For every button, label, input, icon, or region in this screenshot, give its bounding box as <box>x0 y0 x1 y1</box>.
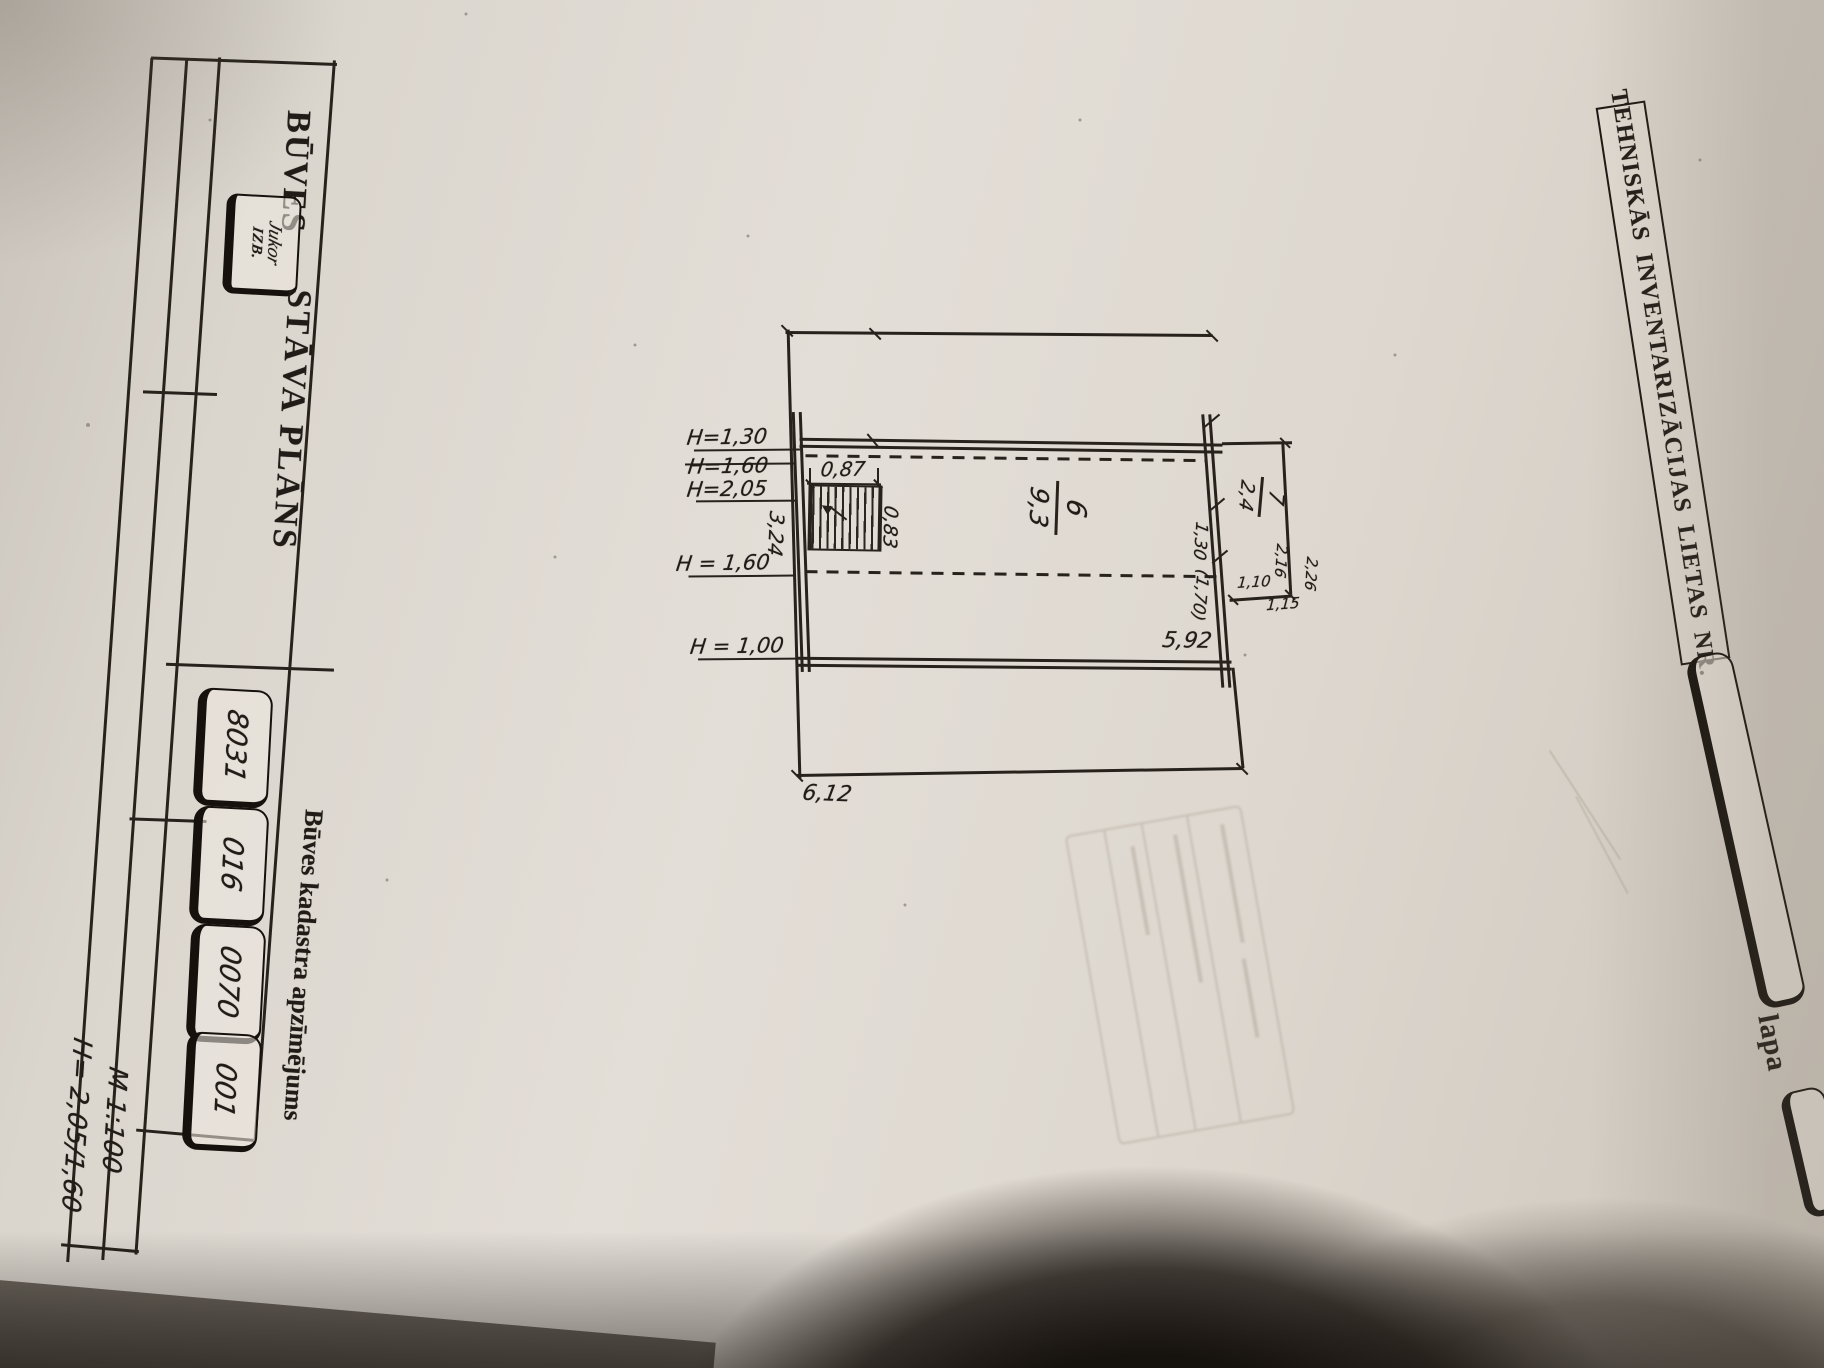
lapa-label: lapa <box>1750 1012 1793 1074</box>
room6-area: 9,3 <box>1024 484 1054 530</box>
cadastre-value-1: 8031 <box>218 707 254 786</box>
dim-annex-side-a: 2,16 <box>1271 542 1291 579</box>
stamp-line2: IZB. <box>247 225 264 261</box>
dim-hatch-depth: 0,83 <box>878 504 901 550</box>
height-mark-1: H=1,30 <box>685 424 768 449</box>
room6-label: 6 9,3 <box>1024 480 1092 536</box>
dim-annex-bottom-a: 1,10 <box>1237 572 1272 592</box>
room7-label: 7 2,4 <box>1234 475 1290 519</box>
paper-speck <box>904 904 907 907</box>
scale-note: M 1:100 <box>95 1064 132 1176</box>
paper-speck <box>554 556 557 559</box>
header-title-band: TEHNISKĀS INVENTARIZĀCIJAS LIETAS NR. <box>1596 100 1731 665</box>
dim-overall-width: 6,12 <box>800 781 853 808</box>
title-block-divider-1 <box>143 390 217 395</box>
title-block-top-edge <box>151 56 337 65</box>
room6-wall-bottom <box>796 657 1231 663</box>
paper-speck <box>1699 159 1702 162</box>
pencil-mark <box>1549 750 1621 860</box>
paper-speck <box>1394 354 1397 357</box>
height-mark-4: H = 1,60 <box>675 550 771 576</box>
paper-speck <box>1079 119 1082 122</box>
cadastre-value-3: 0070 <box>211 943 247 1022</box>
plan-outline-top <box>785 331 1212 337</box>
height-mark-3: H=2,05 <box>685 476 768 501</box>
surveyor-stamp-text: Jukor IZB. <box>247 221 285 266</box>
paper-speck <box>386 879 389 882</box>
paper-speck <box>86 423 90 427</box>
plan-outline-bottom <box>797 767 1244 777</box>
document-title: STĀVA PLĀNS <box>264 288 318 552</box>
hatch-ext-line <box>809 468 811 486</box>
cadastre-value-4: 001 <box>208 1060 243 1121</box>
paper-speck <box>634 344 637 347</box>
paper-speck <box>747 235 750 238</box>
cadastre-value-2: 016 <box>215 834 250 895</box>
bleed-through-stamp <box>1065 805 1296 1145</box>
title-block-divider-2 <box>166 663 334 671</box>
room6-number: 6 <box>1060 497 1091 521</box>
file-number-box <box>1684 649 1808 1011</box>
dim-opening-width: 1,30 <box>1189 520 1211 562</box>
page-number-box <box>1779 1085 1824 1220</box>
table-surface <box>0 1268 716 1368</box>
cadastre-box-3: 0070 <box>185 923 266 1045</box>
cadastre-box-1: 8031 <box>192 687 273 809</box>
cadastre-label: Būves kadastra apzīmējums <box>277 808 329 1121</box>
stamp-line1: Jukor <box>263 219 285 268</box>
dim-annex-bottom-b: 1,15 <box>1266 594 1301 614</box>
room6-wall-bottom-inner <box>796 664 1231 670</box>
hatch-ext-line <box>877 468 879 486</box>
height-mark-5: H = 1,00 <box>689 633 785 659</box>
cadastre-box-4: 001 <box>181 1031 262 1153</box>
photographed-floor-plan-document: TEHNISKĀS INVENTARIZĀCIJAS LIETAS NR. la… <box>0 0 1824 1368</box>
height-mark-2: H=1,60 <box>686 453 769 478</box>
dim-hatch-width: 0,87 <box>819 457 866 482</box>
dim-opening-height: (1,70) <box>1188 567 1213 623</box>
paper-speck <box>209 119 212 122</box>
header-title: TEHNISKĀS INVENTARIZĀCIJAS LIETAS NR. <box>1605 87 1722 678</box>
plan-outline-right-lower <box>1231 668 1244 769</box>
paper-speck <box>465 13 468 16</box>
pencil-mark <box>1575 796 1628 894</box>
cadastre-box-2: 016 <box>188 805 269 927</box>
title-block-divider-5 <box>61 1243 139 1252</box>
heights-note: H= 2,05/1,60 <box>55 1035 97 1215</box>
ceiling-break-line-lower <box>805 570 1218 578</box>
surveyor-stamp: Jukor IZB. <box>222 193 302 297</box>
dim-room-width: 5,92 <box>1161 628 1214 654</box>
paper-speck <box>1244 654 1247 657</box>
dim-annex-side-b: 2,26 <box>1301 555 1321 592</box>
room6-wall-top-inner <box>800 445 1223 453</box>
room7-area: 2,4 <box>1235 478 1259 514</box>
